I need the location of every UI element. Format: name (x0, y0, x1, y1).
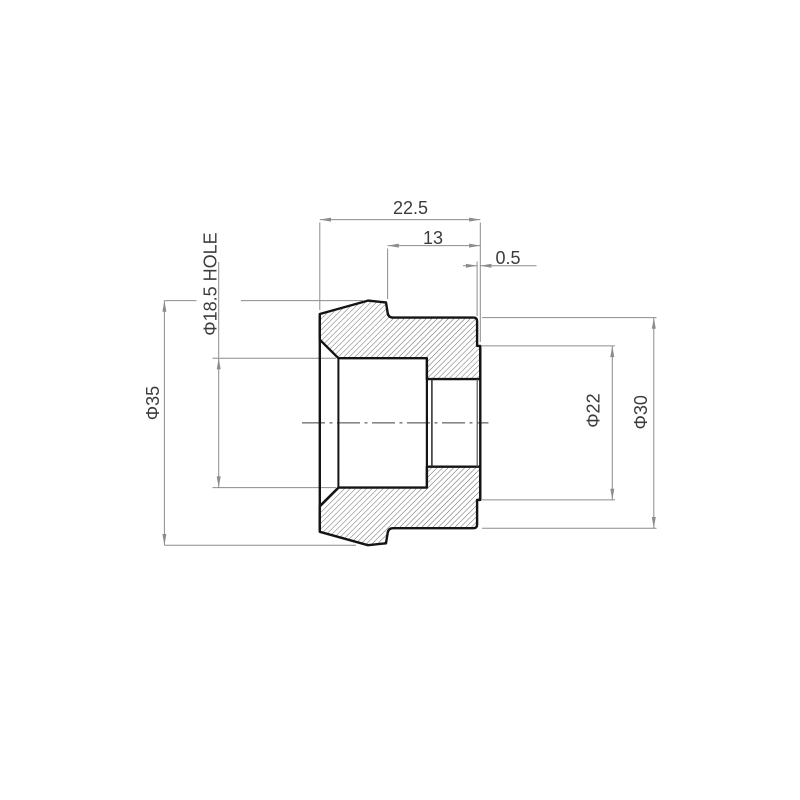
svg-text:0.5: 0.5 (495, 248, 520, 268)
svg-text:Φ30: Φ30 (631, 395, 651, 429)
svg-text:Φ18.5 HOLE: Φ18.5 HOLE (200, 232, 220, 335)
svg-text:13: 13 (423, 228, 443, 248)
svg-text:Φ35: Φ35 (143, 386, 163, 420)
svg-text:22.5: 22.5 (393, 198, 428, 218)
svg-text:Φ22: Φ22 (583, 393, 603, 427)
